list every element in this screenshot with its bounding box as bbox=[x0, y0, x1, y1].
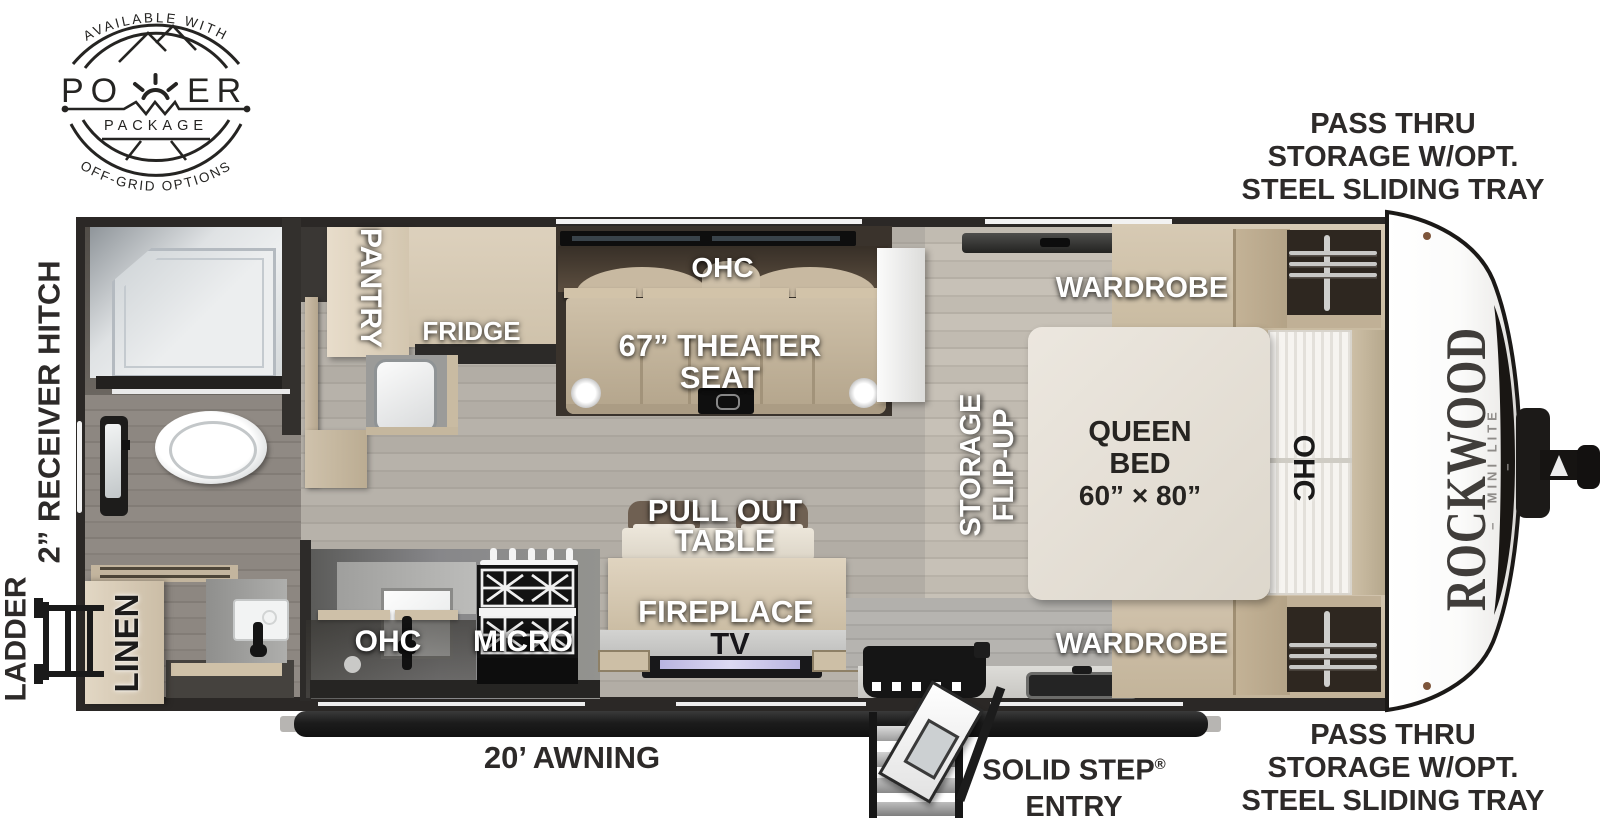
svg-text:ER: ER bbox=[187, 72, 248, 110]
svg-text:PO: PO bbox=[61, 72, 124, 110]
svg-text:PACKAGE: PACKAGE bbox=[104, 118, 208, 134]
